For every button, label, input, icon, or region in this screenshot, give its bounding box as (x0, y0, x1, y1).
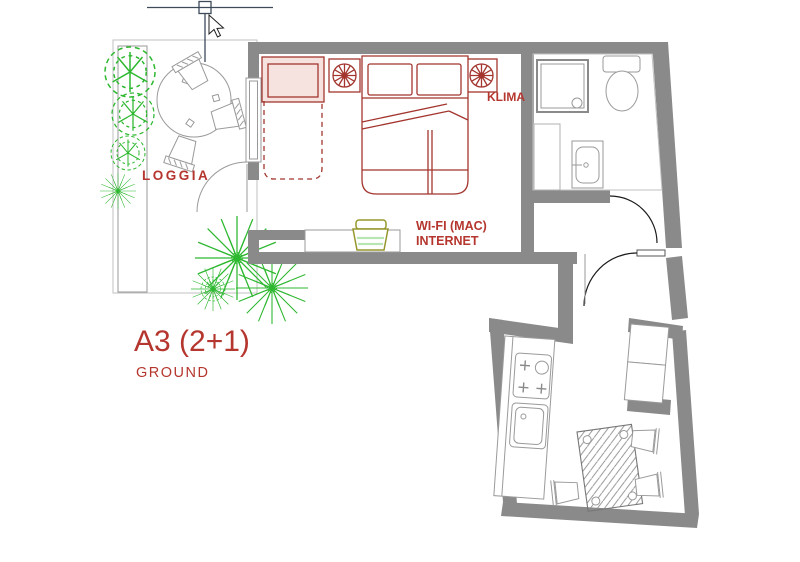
bedroom: KLIMA WI-FI (MAC) INTERNET (262, 56, 525, 252)
bench (624, 324, 668, 403)
kitchen-sink (509, 403, 548, 449)
kitchen-counter (494, 336, 555, 499)
plate (619, 430, 628, 439)
entrance-door (584, 250, 665, 306)
entrance-door-leaf (637, 250, 665, 256)
entrance-door-swing (584, 253, 637, 306)
floor-plan-canvas: LOGGIA (0, 0, 800, 562)
plate (628, 491, 637, 500)
bathroom (533, 54, 662, 243)
plate (591, 497, 600, 506)
wall-kitchen-east (672, 330, 699, 516)
wall-east-upper (652, 42, 682, 248)
nightstand-left (329, 59, 360, 92)
plate (583, 435, 592, 444)
wifi-router-icon (353, 220, 388, 250)
wall-top (248, 42, 656, 54)
floor-title: GROUND (136, 365, 209, 381)
unit-title: A3 (2+1) (134, 325, 250, 358)
stove (513, 353, 552, 399)
wall-bedroom-east (521, 54, 534, 252)
pointer-cursor-icon (209, 15, 224, 37)
double-bed (362, 56, 468, 194)
wall-west-mid (248, 160, 259, 180)
bedroom-window (246, 78, 261, 162)
kitchen (494, 324, 669, 511)
toilet (603, 56, 640, 111)
wifi-label-line1: WI-FI (MAC) (416, 219, 487, 233)
wifi-label-line2: INTERNET (416, 234, 479, 248)
shaft-niche (534, 124, 560, 190)
wash-basin (572, 141, 603, 188)
wall-east-mid (666, 256, 688, 320)
chair (164, 134, 202, 172)
chair (551, 478, 580, 507)
wall-hall-west (558, 264, 573, 330)
ac-fan-icon (470, 64, 493, 87)
single-bed-pullout (264, 101, 322, 179)
klima-label: KLIMA (487, 90, 525, 104)
wall-bedroom-south (248, 252, 577, 264)
single-bed (262, 57, 324, 179)
shower (537, 60, 588, 112)
ac-fan-icon (333, 64, 356, 87)
bathroom-door-swing (610, 196, 657, 243)
floor-plan-svg: LOGGIA (0, 0, 800, 562)
wall-west-upper (248, 42, 259, 80)
loggia-label: LOGGIA (142, 168, 210, 183)
nightstand-right (466, 59, 497, 92)
wall-bath-south (533, 190, 610, 203)
